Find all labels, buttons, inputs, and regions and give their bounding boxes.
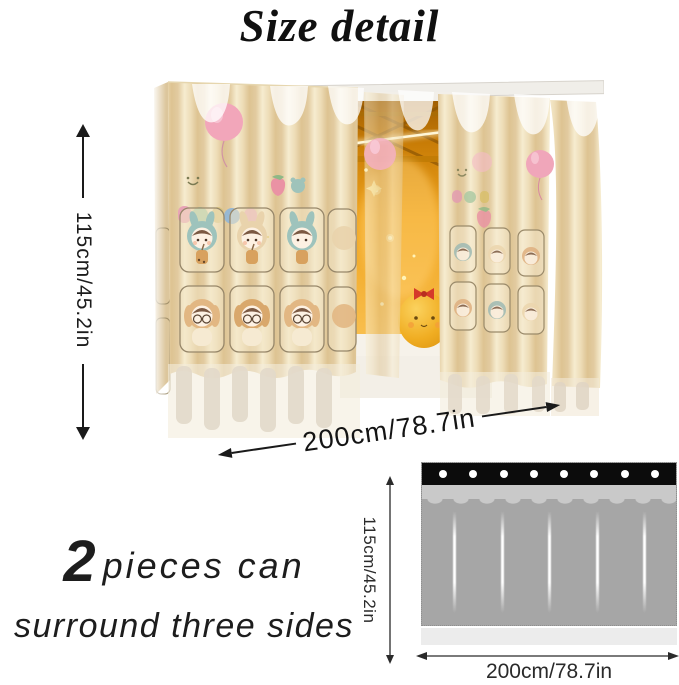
left-curtain-panel <box>154 82 360 438</box>
size-detail-infographic: Size detail <box>0 0 679 685</box>
dimension-line <box>482 406 547 417</box>
fold-highlight <box>643 511 646 613</box>
arrow-right-icon <box>546 400 561 412</box>
fold-highlight <box>548 511 551 613</box>
grommet-dot <box>500 470 508 478</box>
fold-highlight <box>501 511 504 613</box>
grommet-dot <box>530 470 538 478</box>
curtain-diagram <box>421 462 677 626</box>
grommet-strip <box>422 463 676 485</box>
page-title: Size detail <box>0 0 679 52</box>
note-text: 2pieces can surround three sides <box>2 528 366 646</box>
grommet-dot <box>439 470 447 478</box>
grommet-dot <box>590 470 598 478</box>
diagram-scallop-edge <box>422 499 676 507</box>
diagram-body <box>422 507 676 623</box>
fold-highlight <box>453 511 456 613</box>
note-line1: 2pieces can <box>2 528 366 595</box>
photo-height-label: 115cm/45.2in <box>71 212 95 349</box>
note-count: 2 <box>63 529 98 594</box>
photo-height-dimension: 115cm/45.2in <box>70 122 96 442</box>
diagram-top-band <box>422 485 676 499</box>
grommet-dot <box>560 470 568 478</box>
arrow-left-icon <box>217 448 232 460</box>
diagram-height-dimension: 115cm/45.2in <box>382 476 398 664</box>
grommet-dot <box>651 470 659 478</box>
sheer-overlap-pleat <box>364 92 404 378</box>
fold-highlight <box>596 511 599 613</box>
grommet-dot <box>469 470 477 478</box>
diagram-height-label: 115cm/45.2in <box>359 517 379 624</box>
note-line2: surround three sides <box>2 607 366 646</box>
right-drape <box>550 100 602 416</box>
grommet-dot <box>621 470 629 478</box>
note-line1-rest: pieces can <box>103 545 305 586</box>
balloon-graphic <box>364 138 396 170</box>
diagram-width-label: 200cm/78.7in <box>421 661 677 682</box>
right-curtain-panel <box>438 94 554 416</box>
dimension-line <box>232 443 297 454</box>
diagram-hem <box>421 628 677 645</box>
vertical-dimension-arrow-icon <box>382 476 398 664</box>
